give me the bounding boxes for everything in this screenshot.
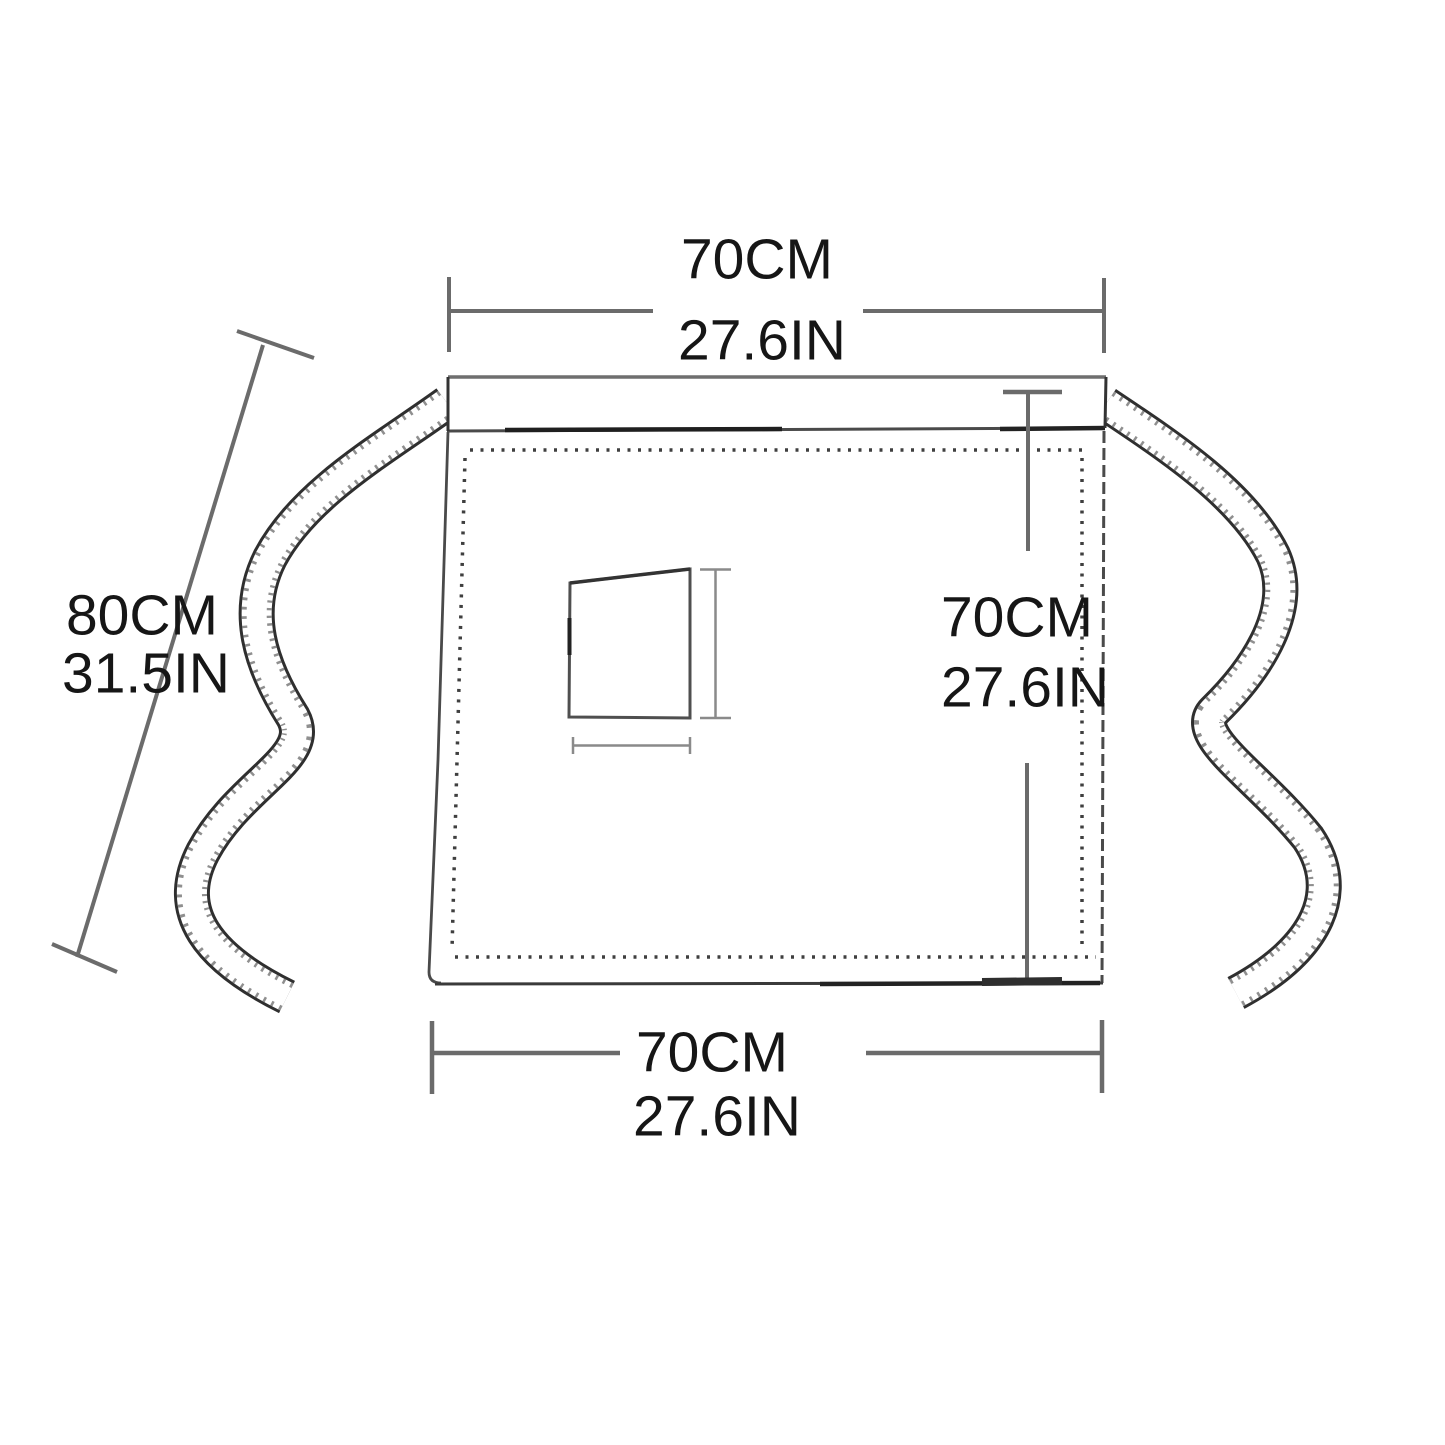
strap-length-label-cm: 80CM	[66, 588, 218, 645]
side-height-label-cm: 70CM	[941, 590, 1093, 647]
bottom-width-label-cm: 70CM	[636, 1025, 788, 1082]
apron-size-diagram: 70CM 27.6IN 80CM 31.5IN 70CM 27.6IN 70CM…	[0, 0, 1445, 1445]
right-tie-strap	[1106, 404, 1324, 993]
top-width-label-cm: 70CM	[681, 232, 833, 289]
side-height-label-inch: 27.6IN	[941, 660, 1109, 717]
left-tie-strap	[192, 403, 447, 997]
top-width-label-inch: 27.6IN	[678, 313, 846, 370]
pocket	[569, 569, 690, 718]
strap-length-label-inch: 31.5IN	[62, 646, 230, 703]
apron-drawing	[0, 0, 1445, 1445]
bottom-width-label-inch: 27.6IN	[633, 1089, 801, 1146]
